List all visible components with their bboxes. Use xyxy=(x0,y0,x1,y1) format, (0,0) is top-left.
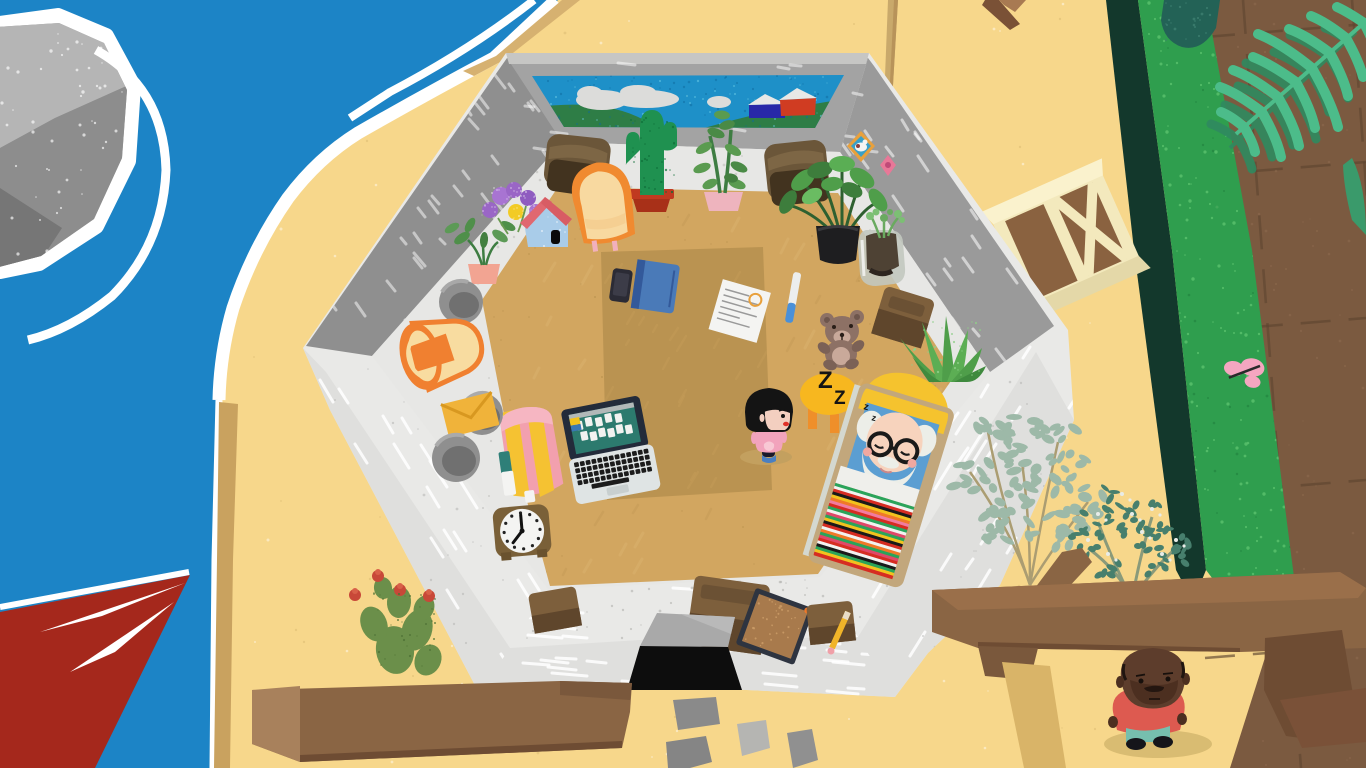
svg-text:Z: Z xyxy=(818,367,833,394)
svg-text:Z: Z xyxy=(834,388,846,409)
